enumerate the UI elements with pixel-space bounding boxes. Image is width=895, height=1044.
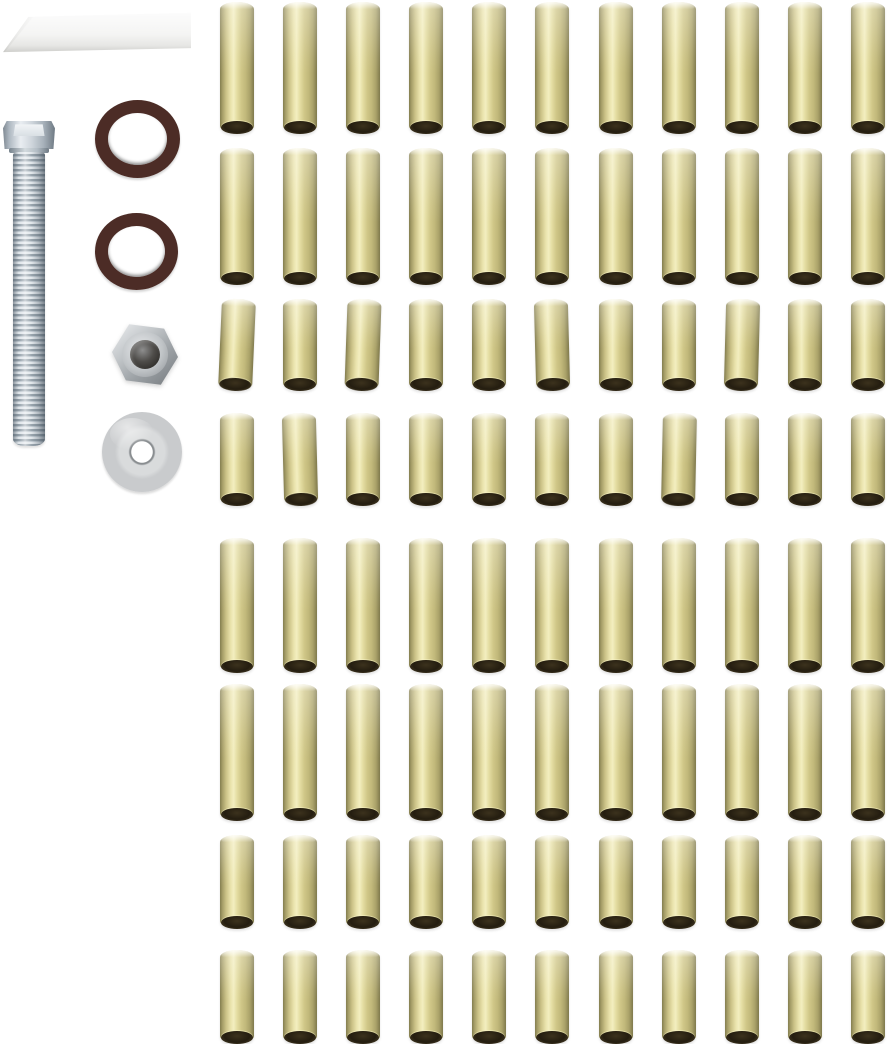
spacer-row-1 [220, 2, 885, 133]
brass-spacer [661, 413, 697, 506]
brass-spacer [283, 299, 317, 390]
brass-spacer [662, 835, 696, 928]
brass-spacer [725, 413, 759, 505]
brass-spacer [725, 538, 759, 672]
brass-spacer [534, 299, 570, 391]
hex-nut-hole [130, 340, 160, 369]
brass-spacer [409, 413, 443, 505]
brass-spacer [851, 2, 885, 133]
brass-spacer [409, 299, 443, 390]
brass-spacer [788, 835, 822, 928]
brass-spacer [346, 413, 380, 505]
brass-spacer [599, 299, 633, 390]
brass-spacer [409, 835, 443, 928]
brass-spacer [472, 950, 506, 1043]
brass-spacer [472, 835, 506, 928]
brass-spacer [851, 835, 885, 928]
brass-spacer [662, 148, 696, 284]
brass-spacer [725, 148, 759, 284]
brass-spacer [535, 684, 569, 820]
brass-spacer [472, 538, 506, 672]
brass-spacer [599, 148, 633, 284]
brass-spacer [662, 538, 696, 672]
wedge-slant-face [3, 12, 33, 53]
brass-spacer [662, 684, 696, 820]
brass-spacer [599, 413, 633, 505]
brass-spacer [851, 148, 885, 284]
brass-spacer [788, 148, 822, 284]
brass-spacer [535, 413, 569, 505]
hex-nut [112, 323, 178, 386]
brass-spacer [282, 413, 318, 506]
brass-spacer [599, 538, 633, 672]
brass-spacer [788, 684, 822, 820]
brass-spacer [535, 2, 569, 133]
brass-spacer [409, 538, 443, 672]
brass-spacer [472, 684, 506, 820]
brass-spacer [788, 413, 822, 505]
flat-washer [102, 412, 182, 492]
brass-spacer [409, 2, 443, 133]
brass-spacer [283, 950, 317, 1043]
brass-spacer [220, 950, 254, 1043]
brass-spacer [220, 835, 254, 928]
brass-spacer [409, 148, 443, 284]
brass-spacer [535, 835, 569, 928]
brass-spacer [472, 413, 506, 505]
plastic-wedge [3, 12, 191, 53]
brass-spacer [725, 950, 759, 1043]
spacer-row-8 [220, 950, 885, 1043]
brass-spacer [662, 950, 696, 1043]
brass-spacer [662, 2, 696, 133]
product-photo [0, 0, 895, 1044]
o-ring-top [95, 100, 180, 178]
brass-spacer [220, 538, 254, 672]
brass-spacer [851, 538, 885, 672]
brass-spacer [788, 950, 822, 1043]
brass-spacer [283, 148, 317, 284]
brass-spacer [346, 538, 380, 672]
brass-spacer [220, 684, 254, 820]
brass-spacer [599, 950, 633, 1043]
brass-spacer [724, 299, 760, 391]
brass-spacer [472, 2, 506, 133]
hex-bolt [3, 121, 55, 447]
brass-spacer [535, 538, 569, 672]
brass-spacer [725, 684, 759, 820]
brass-spacer [346, 148, 380, 284]
brass-spacer [788, 538, 822, 672]
brass-spacer [346, 950, 380, 1043]
spacer-row-6 [220, 684, 885, 820]
brass-spacer [851, 684, 885, 820]
spacer-row-7 [220, 835, 885, 928]
brass-spacer [346, 835, 380, 928]
brass-spacer [535, 148, 569, 284]
brass-spacer [346, 2, 380, 133]
brass-spacer [851, 413, 885, 505]
brass-spacer [409, 950, 443, 1043]
brass-spacer [851, 950, 885, 1043]
bolt-head [3, 121, 55, 149]
brass-spacer [472, 148, 506, 284]
brass-spacer [283, 538, 317, 672]
o-ring-bottom [95, 213, 178, 290]
spacer-row-5 [220, 538, 885, 672]
bolt-threaded-shank [13, 152, 45, 446]
brass-spacer [218, 298, 256, 390]
brass-spacer [599, 2, 633, 133]
brass-spacer [283, 2, 317, 133]
brass-spacer [662, 299, 696, 390]
brass-spacer [725, 2, 759, 133]
brass-spacer [788, 299, 822, 390]
spacer-row-2 [220, 148, 885, 284]
brass-spacer [283, 835, 317, 928]
brass-spacer [599, 835, 633, 928]
brass-spacer [472, 299, 506, 390]
brass-spacer [851, 299, 885, 390]
brass-spacer [220, 148, 254, 284]
brass-spacer [725, 835, 759, 928]
brass-spacer [346, 684, 380, 820]
brass-spacer [599, 684, 633, 820]
brass-spacer [220, 2, 254, 133]
brass-spacer [220, 413, 254, 505]
brass-spacer [345, 298, 382, 390]
brass-spacer [409, 684, 443, 820]
brass-spacer [535, 950, 569, 1043]
spacer-row-4 [220, 413, 885, 505]
brass-spacer [788, 2, 822, 133]
spacer-row-3 [220, 299, 885, 390]
brass-spacer [283, 684, 317, 820]
